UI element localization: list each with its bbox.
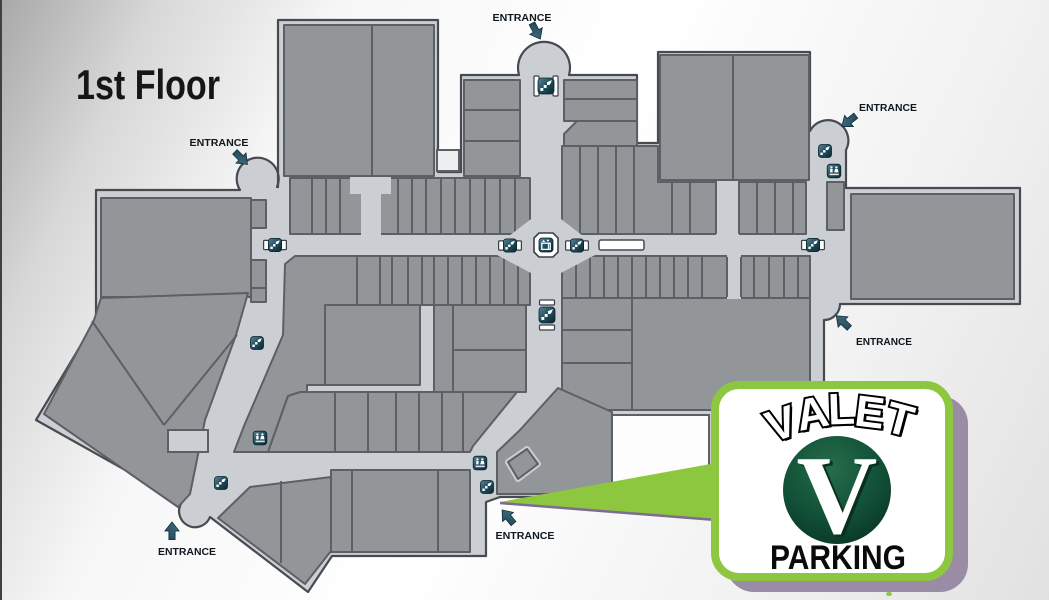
svg-text:L: L (827, 385, 856, 435)
svg-text:ENTRANCE: ENTRANCE (190, 137, 249, 149)
svg-text:PARKING: PARKING (770, 539, 906, 577)
svg-text:ENTRANCE: ENTRANCE (493, 12, 552, 24)
svg-text:ENTRANCE: ENTRANCE (496, 530, 555, 542)
svg-text:ENTRANCE: ENTRANCE (859, 102, 917, 114)
svg-text:1st Floor: 1st Floor (76, 61, 220, 108)
svg-text:ENTRANCE: ENTRANCE (856, 336, 912, 348)
svg-text:ENTRANCE: ENTRANCE (158, 546, 216, 558)
